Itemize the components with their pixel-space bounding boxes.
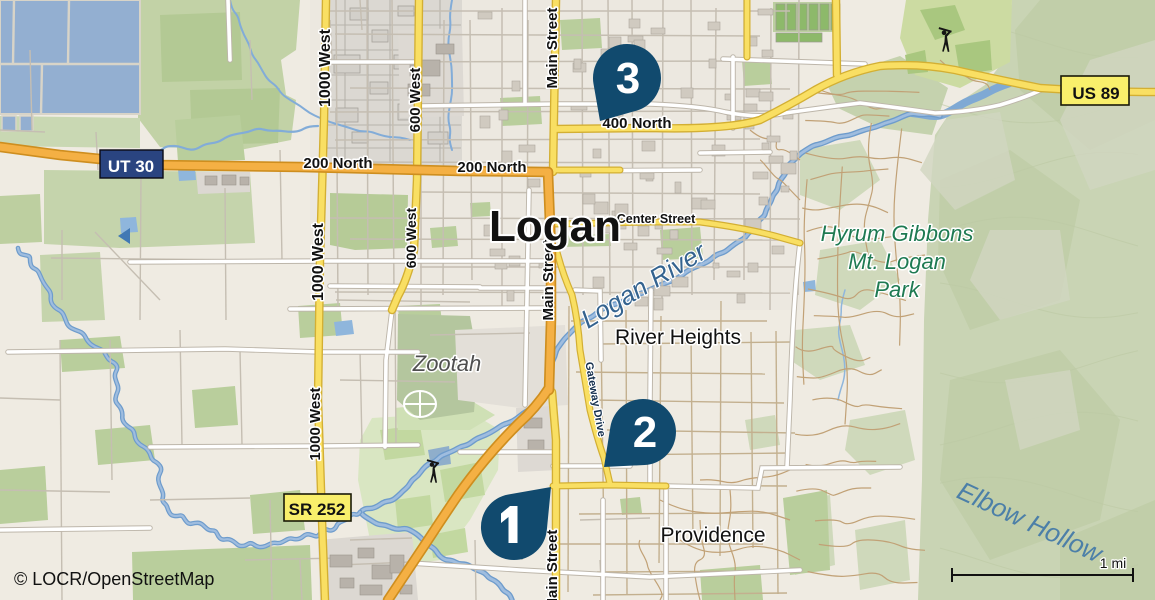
svg-text:UT 30: UT 30 — [108, 157, 154, 176]
svg-text:Providence: Providence — [660, 524, 765, 547]
svg-text:Main Street: Main Street — [544, 8, 561, 89]
svg-text:Main Street: Main Street — [540, 240, 557, 321]
svg-text:1 mi: 1 mi — [1100, 555, 1126, 571]
svg-text:400 North: 400 North — [602, 115, 671, 132]
svg-text:© LOCR/OpenStreetMap: © LOCR/OpenStreetMap — [14, 569, 214, 589]
svg-text:200 North: 200 North — [457, 159, 526, 176]
svg-text:US 89: US 89 — [1072, 84, 1119, 103]
svg-text:1000 West: 1000 West — [317, 28, 334, 107]
svg-text:River Heights: River Heights — [615, 326, 741, 349]
svg-text:Main Street: Main Street — [544, 530, 561, 600]
svg-text:600 West: 600 West — [403, 207, 419, 268]
svg-text:Center Street: Center Street — [617, 212, 696, 226]
svg-text:Zootah: Zootah — [412, 351, 482, 376]
svg-text:3: 3 — [616, 54, 640, 103]
svg-text:Hyrum Gibbons: Hyrum Gibbons — [821, 221, 974, 246]
svg-text:Logan: Logan — [489, 202, 621, 251]
svg-text:2: 2 — [633, 408, 657, 457]
svg-text:200 North: 200 North — [303, 155, 372, 172]
svg-text:Mt. Logan: Mt. Logan — [848, 249, 946, 274]
svg-text:600 West: 600 West — [407, 68, 424, 133]
svg-text:Park: Park — [874, 277, 920, 302]
svg-text:1000 West: 1000 West — [307, 387, 324, 460]
svg-text:SR 252: SR 252 — [289, 500, 346, 519]
svg-text:1000 West: 1000 West — [310, 222, 327, 301]
